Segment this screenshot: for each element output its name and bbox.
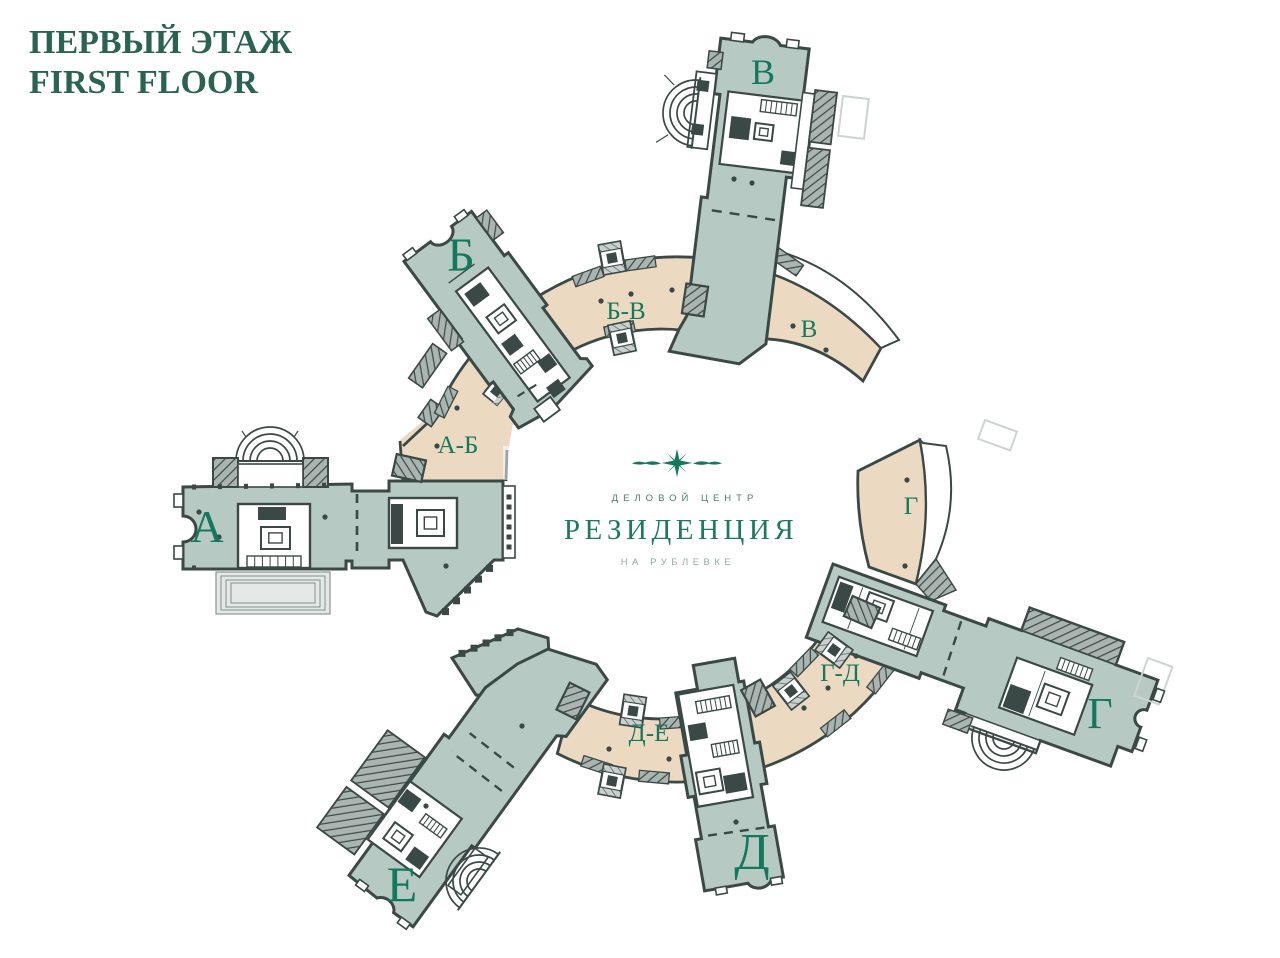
svg-text:Г: Г <box>904 493 918 520</box>
svg-text:В: В <box>751 52 775 92</box>
svg-text:НА РУБЛЕВКЕ: НА РУБЛЕВКЕ <box>621 557 736 568</box>
svg-text:А: А <box>190 501 223 552</box>
svg-text:РЕЗИДЕНЦИЯ: РЕЗИДЕНЦИЯ <box>564 514 798 546</box>
svg-text:FIRST FLOOR: FIRST FLOOR <box>29 64 258 101</box>
svg-text:Б-В: Б-В <box>606 298 645 325</box>
svg-text:Г: Г <box>1087 689 1112 738</box>
svg-text:Б: Б <box>447 229 475 282</box>
svg-text:ДЕЛОВОЙ ЦЕНТР: ДЕЛОВОЙ ЦЕНТР <box>612 492 759 504</box>
svg-text:Д-Е: Д-Е <box>629 720 670 747</box>
svg-text:Д: Д <box>734 824 769 881</box>
svg-text:ПЕРВЫЙ ЭТАЖ: ПЕРВЫЙ ЭТАЖ <box>29 24 293 61</box>
svg-text:В: В <box>801 316 818 343</box>
svg-text:Е: Е <box>387 856 418 912</box>
svg-text:А-Б: А-Б <box>438 432 479 459</box>
svg-text:Г-Д: Г-Д <box>820 660 860 687</box>
